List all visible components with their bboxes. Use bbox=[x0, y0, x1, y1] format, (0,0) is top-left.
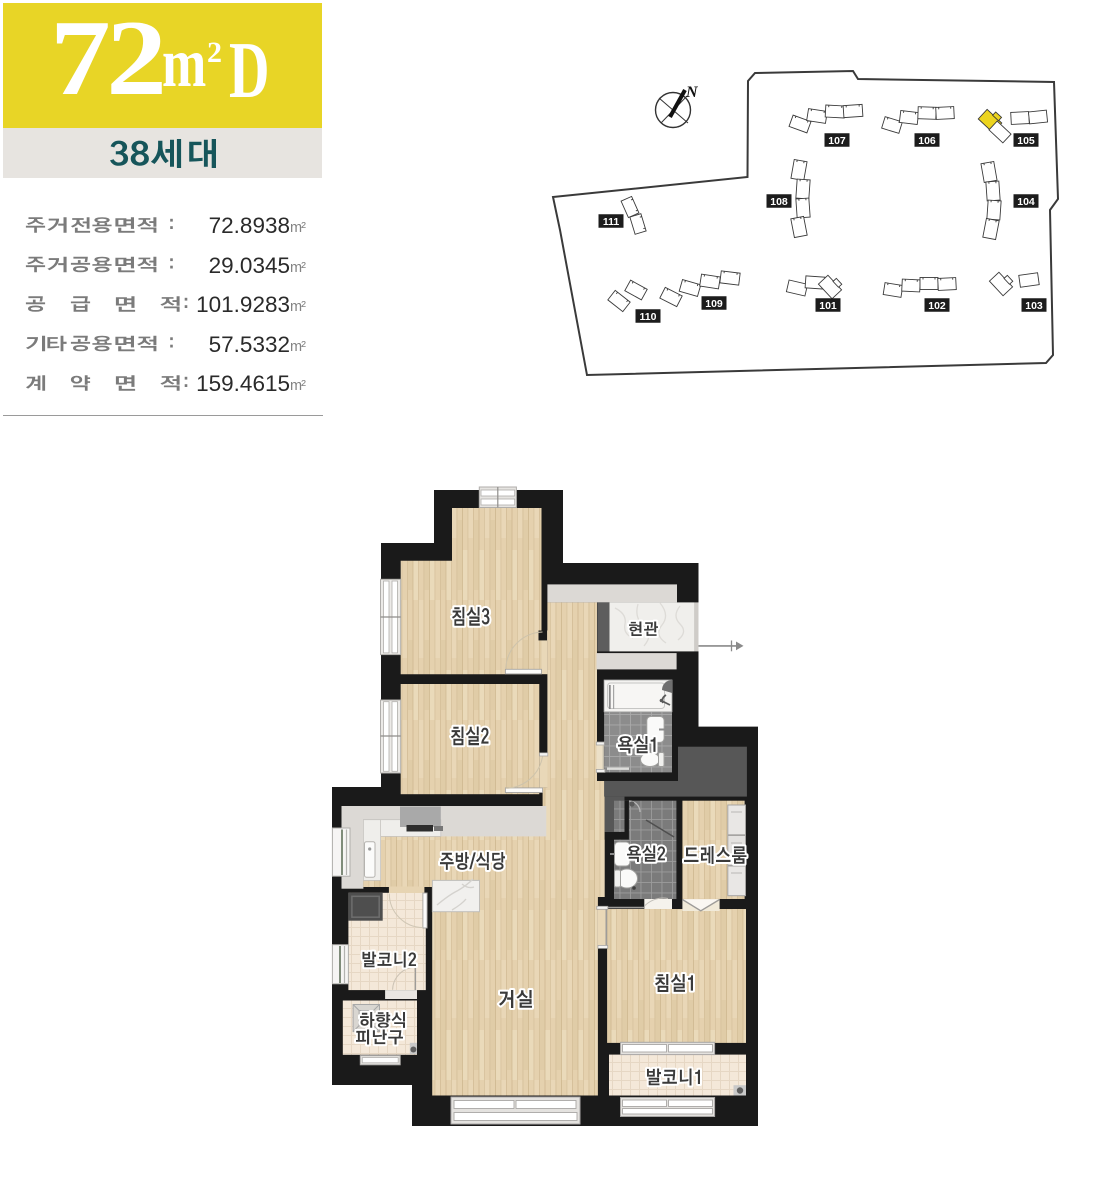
svg-text:109: 109 bbox=[705, 298, 723, 310]
svg-text:103: 103 bbox=[1025, 300, 1043, 312]
svg-text:105: 105 bbox=[1017, 135, 1035, 147]
svg-text:102: 102 bbox=[928, 300, 946, 312]
svg-text:111: 111 bbox=[603, 216, 620, 228]
svg-text:N: N bbox=[685, 84, 699, 101]
svg-text:110: 110 bbox=[640, 311, 657, 323]
svg-text:101: 101 bbox=[819, 300, 837, 312]
svg-text:104: 104 bbox=[1017, 196, 1035, 208]
svg-text:107: 107 bbox=[828, 135, 846, 147]
svg-text:106: 106 bbox=[918, 135, 936, 147]
svg-text:108: 108 bbox=[770, 196, 788, 208]
